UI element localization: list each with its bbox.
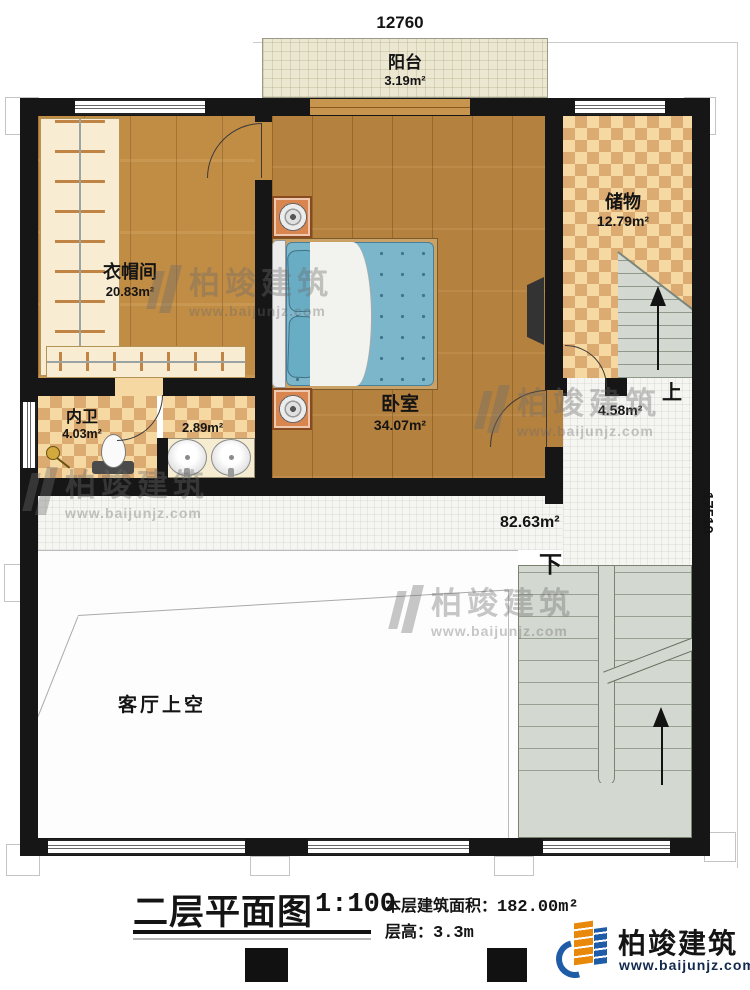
plan-height-row: 层高：3.3m [385, 918, 474, 943]
room-label-storage: 储物 12.79m² [563, 188, 683, 234]
stair-down-label: 下 [539, 545, 562, 579]
nightstand-lamp [278, 202, 308, 232]
pillar-marker [245, 948, 288, 982]
stair-landing [519, 783, 691, 837]
stair-down-arrow-stem [661, 727, 663, 785]
wall-bath-vanity [157, 438, 168, 478]
door-opening-bedroom [545, 390, 563, 447]
column-footing [250, 856, 290, 876]
nightstand-lamp [278, 394, 308, 424]
dimension-right: 17510 [699, 492, 716, 534]
vanity-area-label: 2.89m² [182, 420, 223, 435]
plan-area-row: 本层建筑面积：182.00m² [385, 892, 579, 917]
room-label-cloakroom: 衣帽间 20.83m² [70, 258, 190, 304]
room-label-bedroom: 卧室 34.07m² [335, 390, 465, 438]
wall-storage-bottom-b [605, 378, 627, 396]
plan-height-label: 层高： [385, 924, 433, 941]
balcony-label: 阳台 [388, 48, 422, 73]
wall-bedroom-right-upper [545, 116, 563, 390]
dimension-top: 12760 [320, 13, 480, 33]
brand-name: 柏竣建筑 [618, 922, 738, 962]
door-leaf-cloakroom [261, 123, 263, 178]
wall-right [692, 98, 710, 856]
balcony-sliding-door [310, 99, 470, 115]
window [575, 99, 665, 115]
door-opening-bathroom [115, 378, 163, 396]
plan-height-value: 3.3m [433, 924, 474, 943]
balcony-area: 3.19m² [384, 73, 425, 88]
wall-rooms-bottom [20, 478, 563, 496]
pillar-marker [487, 948, 527, 982]
hall-floor-main [38, 496, 563, 550]
sink [211, 439, 251, 476]
plan-scale: 1:100 [315, 890, 396, 920]
title-underline-2 [133, 938, 371, 940]
brand-logo-building-orange [574, 921, 593, 966]
storage-area: 12.79m² [597, 213, 649, 230]
bathroom-area: 4.03m² [62, 427, 102, 442]
title-underline [133, 930, 371, 934]
stair-hall-area-label: 4.58m² [598, 402, 642, 418]
stair-up-arrow-stem [657, 306, 659, 370]
bedroom-area: 34.07m² [374, 417, 426, 434]
window [308, 839, 469, 855]
bathroom-name: 内卫 [66, 408, 98, 427]
void-outline-right [508, 590, 509, 838]
tv [527, 277, 544, 345]
bed-headboard [272, 240, 286, 388]
window [543, 839, 670, 855]
window [75, 99, 205, 115]
sink [167, 439, 207, 476]
wardrobe-bottom [46, 346, 246, 378]
wall-left [20, 98, 38, 856]
wardrobe-left [40, 118, 120, 376]
hall-boundary-line [38, 550, 518, 551]
bed-blanket [310, 242, 372, 386]
room-label-bathroom: 内卫 4.03m² [42, 404, 122, 446]
floor-plan-page: { "dimensions": { "top": "12760", "right… [0, 0, 750, 990]
column-footing [494, 856, 534, 876]
stair-down [518, 565, 692, 838]
column-footing [4, 564, 21, 602]
plan-title: 二层平面图 [133, 884, 313, 935]
brand-logo-building-blue [594, 927, 607, 965]
plan-area-value: 182.00m² [497, 898, 579, 917]
storage-name: 储物 [605, 192, 641, 214]
living-void-label: 客厅上空 [118, 690, 206, 717]
stair-down-arrow [653, 707, 669, 727]
cloakroom-area: 20.83m² [106, 284, 154, 300]
room-balcony: 阳台 3.19m² [262, 38, 548, 98]
brand-logo [554, 918, 612, 980]
window [21, 402, 37, 468]
stair-break-line [603, 635, 703, 684]
stair-up-arrow [650, 286, 666, 306]
door-leaf-bedroom [546, 390, 548, 447]
window [48, 839, 245, 855]
cloakroom-name: 衣帽间 [103, 262, 157, 284]
brand-url: www.baijunjz.com [619, 957, 750, 973]
frame-line-right [737, 42, 738, 868]
plan-area-label: 本层建筑面积： [385, 898, 497, 915]
bedroom-name: 卧室 [381, 394, 419, 417]
stair-up-label: 上 [662, 376, 682, 405]
hall-area-label: 82.63m² [500, 514, 560, 532]
